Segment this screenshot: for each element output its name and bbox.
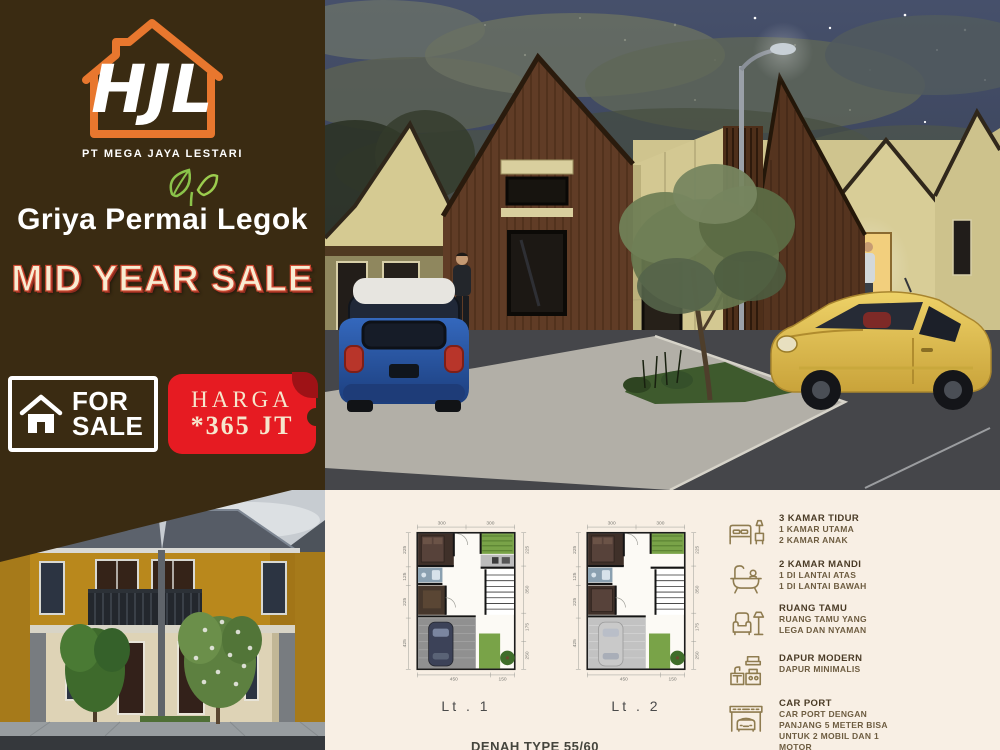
blue-car (339, 278, 469, 412)
feature-carport: CAR PORT CAR PORT DENGAN PANJANG 5 METER… (727, 697, 999, 750)
house-icon (18, 391, 64, 437)
svg-text:350: 350 (525, 585, 531, 593)
svg-text:225: 225 (695, 545, 701, 553)
svg-text:425: 425 (402, 639, 408, 647)
floorplan-panel: 300 300 225 125 225 425 225 350 175 250 … (325, 490, 1000, 750)
svg-text:300: 300 (486, 521, 494, 527)
svg-text:175: 175 (525, 623, 531, 631)
carport-icon (727, 697, 765, 735)
svg-text:425: 425 (572, 639, 578, 647)
street (0, 736, 325, 750)
feature-bedrooms: 3 KAMAR TIDUR 1 KAMAR UTAMA 2 KAMAR ANAK (727, 512, 999, 550)
company-logo-house-icon: HJL (72, 14, 232, 146)
badge-row: FOR SALE HARGA *365 JT (8, 374, 317, 454)
svg-text:225: 225 (572, 545, 578, 553)
svg-text:300: 300 (438, 521, 446, 527)
price-value: *365 JT (191, 411, 294, 441)
svg-text:350: 350 (695, 585, 701, 593)
feature-living-room: RUANG TAMU RUANG TAMU YANG LEGA DAN NYAM… (727, 602, 999, 640)
floorplan-level-1: 300 300 225 125 225 425 225 350 175 250 … (401, 510, 531, 692)
for-sale-badge: FOR SALE (8, 376, 158, 452)
svg-text:150: 150 (669, 677, 677, 683)
house-render-photo (0, 490, 325, 750)
price-label: HARGA (191, 388, 293, 411)
for-sale-label: FOR SALE (72, 389, 143, 438)
svg-text:125: 125 (572, 572, 578, 580)
pavement (0, 722, 325, 736)
brand-panel: HJL PT MEGA JAYA LESTARI Griya Permai Le… (0, 0, 325, 490)
plan1-label: Lt . 1 (401, 698, 531, 714)
bed-icon (727, 512, 765, 550)
plan2-label: Lt . 2 (571, 698, 701, 714)
svg-text:250: 250 (525, 651, 531, 659)
svg-text:225: 225 (525, 545, 531, 553)
svg-text:250: 250 (695, 651, 701, 659)
price-tag: HARGA *365 JT (168, 374, 316, 454)
night-scene (325, 0, 1000, 490)
kitchen-icon (727, 652, 765, 690)
floorplan-level-2: 300 300 225 125 225 425 225 350 175 250 … (571, 510, 701, 692)
townhouse-scene (0, 490, 325, 750)
svg-text:225: 225 (402, 597, 408, 605)
svg-text:225: 225 (402, 545, 408, 553)
night-render-photo (325, 0, 1000, 490)
leaf-icon (158, 164, 224, 208)
bathtub-icon (727, 558, 765, 596)
plans-caption: DENAH TYPE 55/60 (415, 739, 655, 750)
svg-text:300: 300 (656, 521, 664, 527)
property-flyer: HJL PT MEGA JAYA LESTARI Griya Permai Le… (0, 0, 1000, 750)
logo-monogram: HJL (91, 51, 213, 128)
svg-text:175: 175 (695, 623, 701, 631)
svg-text:125: 125 (402, 572, 408, 580)
svg-text:225: 225 (572, 597, 578, 605)
feature-bathrooms: 2 KAMAR MANDI 1 DI LANTAI ATAS 1 DI LANT… (727, 558, 999, 596)
project-title: Griya Permai Legok (0, 203, 325, 237)
svg-text:450: 450 (450, 677, 458, 683)
sofa-icon (727, 602, 765, 640)
svg-text:150: 150 (499, 677, 507, 683)
svg-text:450: 450 (620, 677, 628, 683)
feature-kitchen: DAPUR MODERN DAPUR MINIMALIS (727, 652, 999, 690)
svg-text:300: 300 (608, 521, 616, 527)
promo-headline: MID YEAR SALE (0, 258, 325, 300)
company-name: PT MEGA JAYA LESTARI (0, 148, 325, 160)
